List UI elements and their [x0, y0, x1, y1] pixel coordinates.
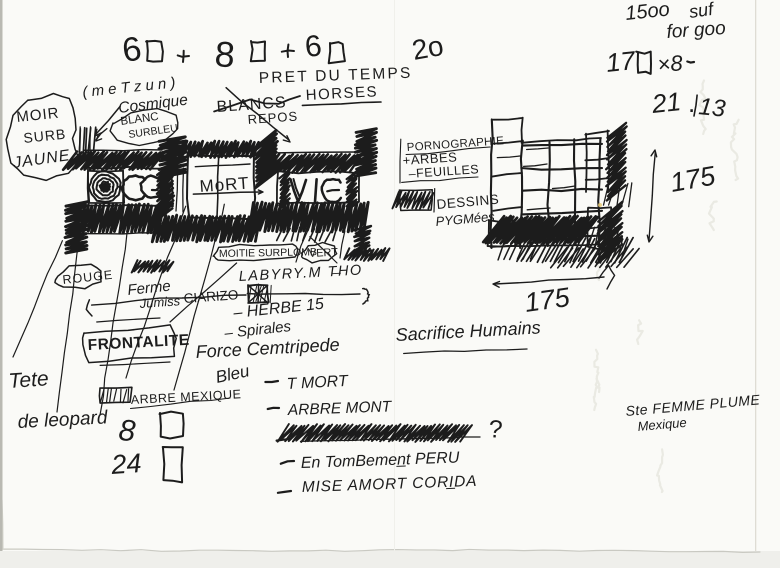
svg-text:2o: 2o	[410, 30, 446, 66]
svg-text:17: 17	[604, 45, 637, 78]
svg-text:Jumiss: Jumiss	[138, 293, 181, 311]
svg-text:8: 8	[213, 33, 236, 75]
svg-text:175: 175	[523, 282, 573, 318]
svg-text:21: 21	[649, 86, 682, 119]
svg-text:Tete: Tete	[8, 367, 50, 393]
svg-text:for goo: for goo	[666, 18, 726, 43]
svg-text:×8: ×8	[657, 50, 685, 77]
svg-text:6: 6	[303, 29, 323, 64]
svg-text:13: 13	[697, 93, 727, 123]
svg-text:?: ?	[488, 415, 504, 444]
svg-text:24: 24	[109, 448, 142, 480]
svg-text:T MORT: T MORT	[286, 373, 349, 393]
svg-text:8: 8	[118, 414, 137, 448]
svg-text:VERT: VERT	[309, 246, 339, 260]
